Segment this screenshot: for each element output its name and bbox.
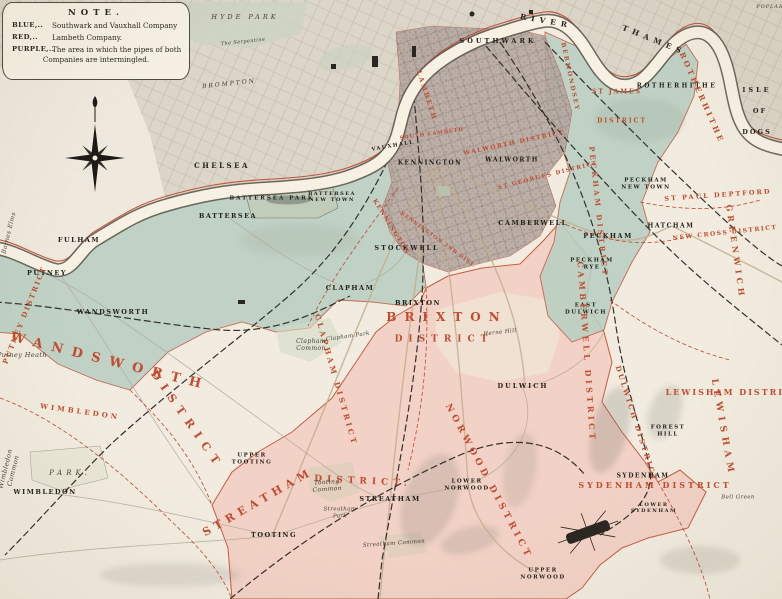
legend-text-purple: The area in which the pipes of both bbox=[52, 45, 183, 54]
legend-key-purple: PURPLE,.. bbox=[12, 45, 52, 54]
legend-row-red: RED,.. Lambeth Company. bbox=[12, 33, 183, 42]
note-title: NOTE. bbox=[3, 8, 189, 18]
legend-text-blue: Southwark and Vauxhall Company bbox=[52, 21, 183, 30]
palace-building bbox=[331, 64, 336, 69]
battersea-park-lake bbox=[266, 196, 310, 205]
westminster-buildings bbox=[372, 56, 378, 67]
legend-note-box: NOTE. BLUE,.. Southwark and Vauxhall Com… bbox=[2, 2, 190, 80]
legend-text-purple-cont: Companies are intermingled. bbox=[3, 55, 189, 64]
legend-row-purple: PURPLE,.. The area in which the pipes of… bbox=[12, 45, 183, 54]
map-canvas: SOUTHWARKROTHERHITHECHELSEAKENNINGTONWAL… bbox=[0, 0, 782, 599]
map-artwork bbox=[0, 0, 782, 599]
legend-key-blue: BLUE,.. bbox=[12, 21, 52, 30]
legend-key-red: RED,.. bbox=[12, 33, 52, 42]
legend-text-red: Lambeth Company. bbox=[52, 33, 183, 42]
legend-row-blue: BLUE,.. Southwark and Vauxhall Company bbox=[12, 21, 183, 30]
